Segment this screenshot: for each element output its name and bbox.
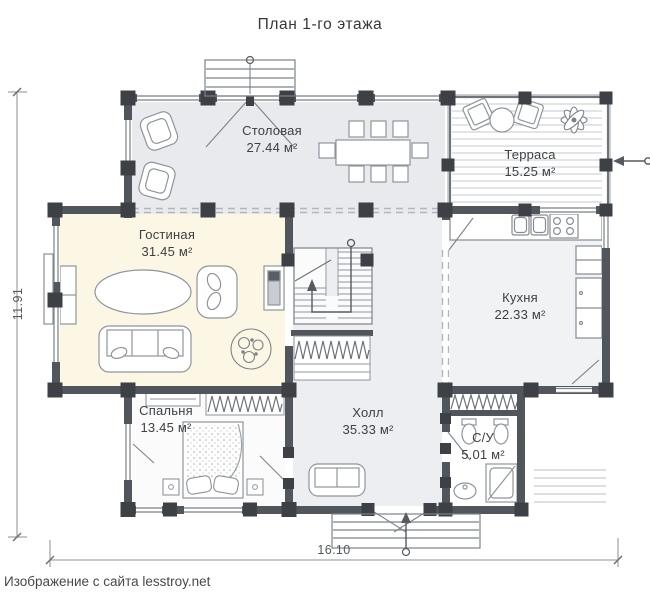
room-area: 22.33 м²: [440, 306, 600, 323]
room-name: Терраса: [504, 147, 555, 162]
room-name: С/У: [472, 430, 494, 445]
floor-plan-page: План 1-го этажа Столовая 27.44 м² Террас…: [0, 0, 650, 601]
room-label-kitchen: Кухня 22.33 м²: [440, 289, 600, 323]
room-area: 5.01 м²: [403, 446, 563, 463]
room-name: Кухня: [502, 290, 538, 305]
room-area: 31.45 м²: [87, 243, 247, 260]
watermark-text: Изображение с сайта lesstroy.net: [4, 574, 210, 589]
room-label-terrace: Терраса 15.25 м²: [450, 146, 610, 180]
room-label-bathroom: С/У 5.01 м²: [403, 429, 563, 463]
dimension-width: 16.10: [305, 543, 363, 557]
page-title: План 1-го этажа: [0, 16, 640, 34]
terrace-plant: [561, 107, 587, 133]
room-name: Спальня: [139, 403, 193, 418]
room-area: 27.44 м²: [192, 139, 352, 156]
living-fireplace: [264, 266, 284, 310]
rear-deck-stripes: [534, 470, 606, 502]
hall-closet: [291, 330, 373, 380]
room-name: Гостиная: [139, 227, 195, 242]
staircase: [294, 240, 372, 325]
room-label-living: Гостиная 31.45 м²: [87, 226, 247, 260]
dimension-height: 11.91: [11, 280, 25, 328]
room-label-bedroom: Спальня 13.45 м²: [86, 402, 246, 436]
room-area: 15.25 м²: [450, 163, 610, 180]
hall-sofa: [309, 464, 365, 496]
room-name: Холл: [352, 405, 383, 420]
terrace-entry-arrow: [613, 156, 650, 166]
room-label-dining: Столовая 27.44 м²: [192, 122, 352, 156]
room-area: 13.45 м²: [86, 419, 246, 436]
room-name: Столовая: [242, 123, 302, 138]
